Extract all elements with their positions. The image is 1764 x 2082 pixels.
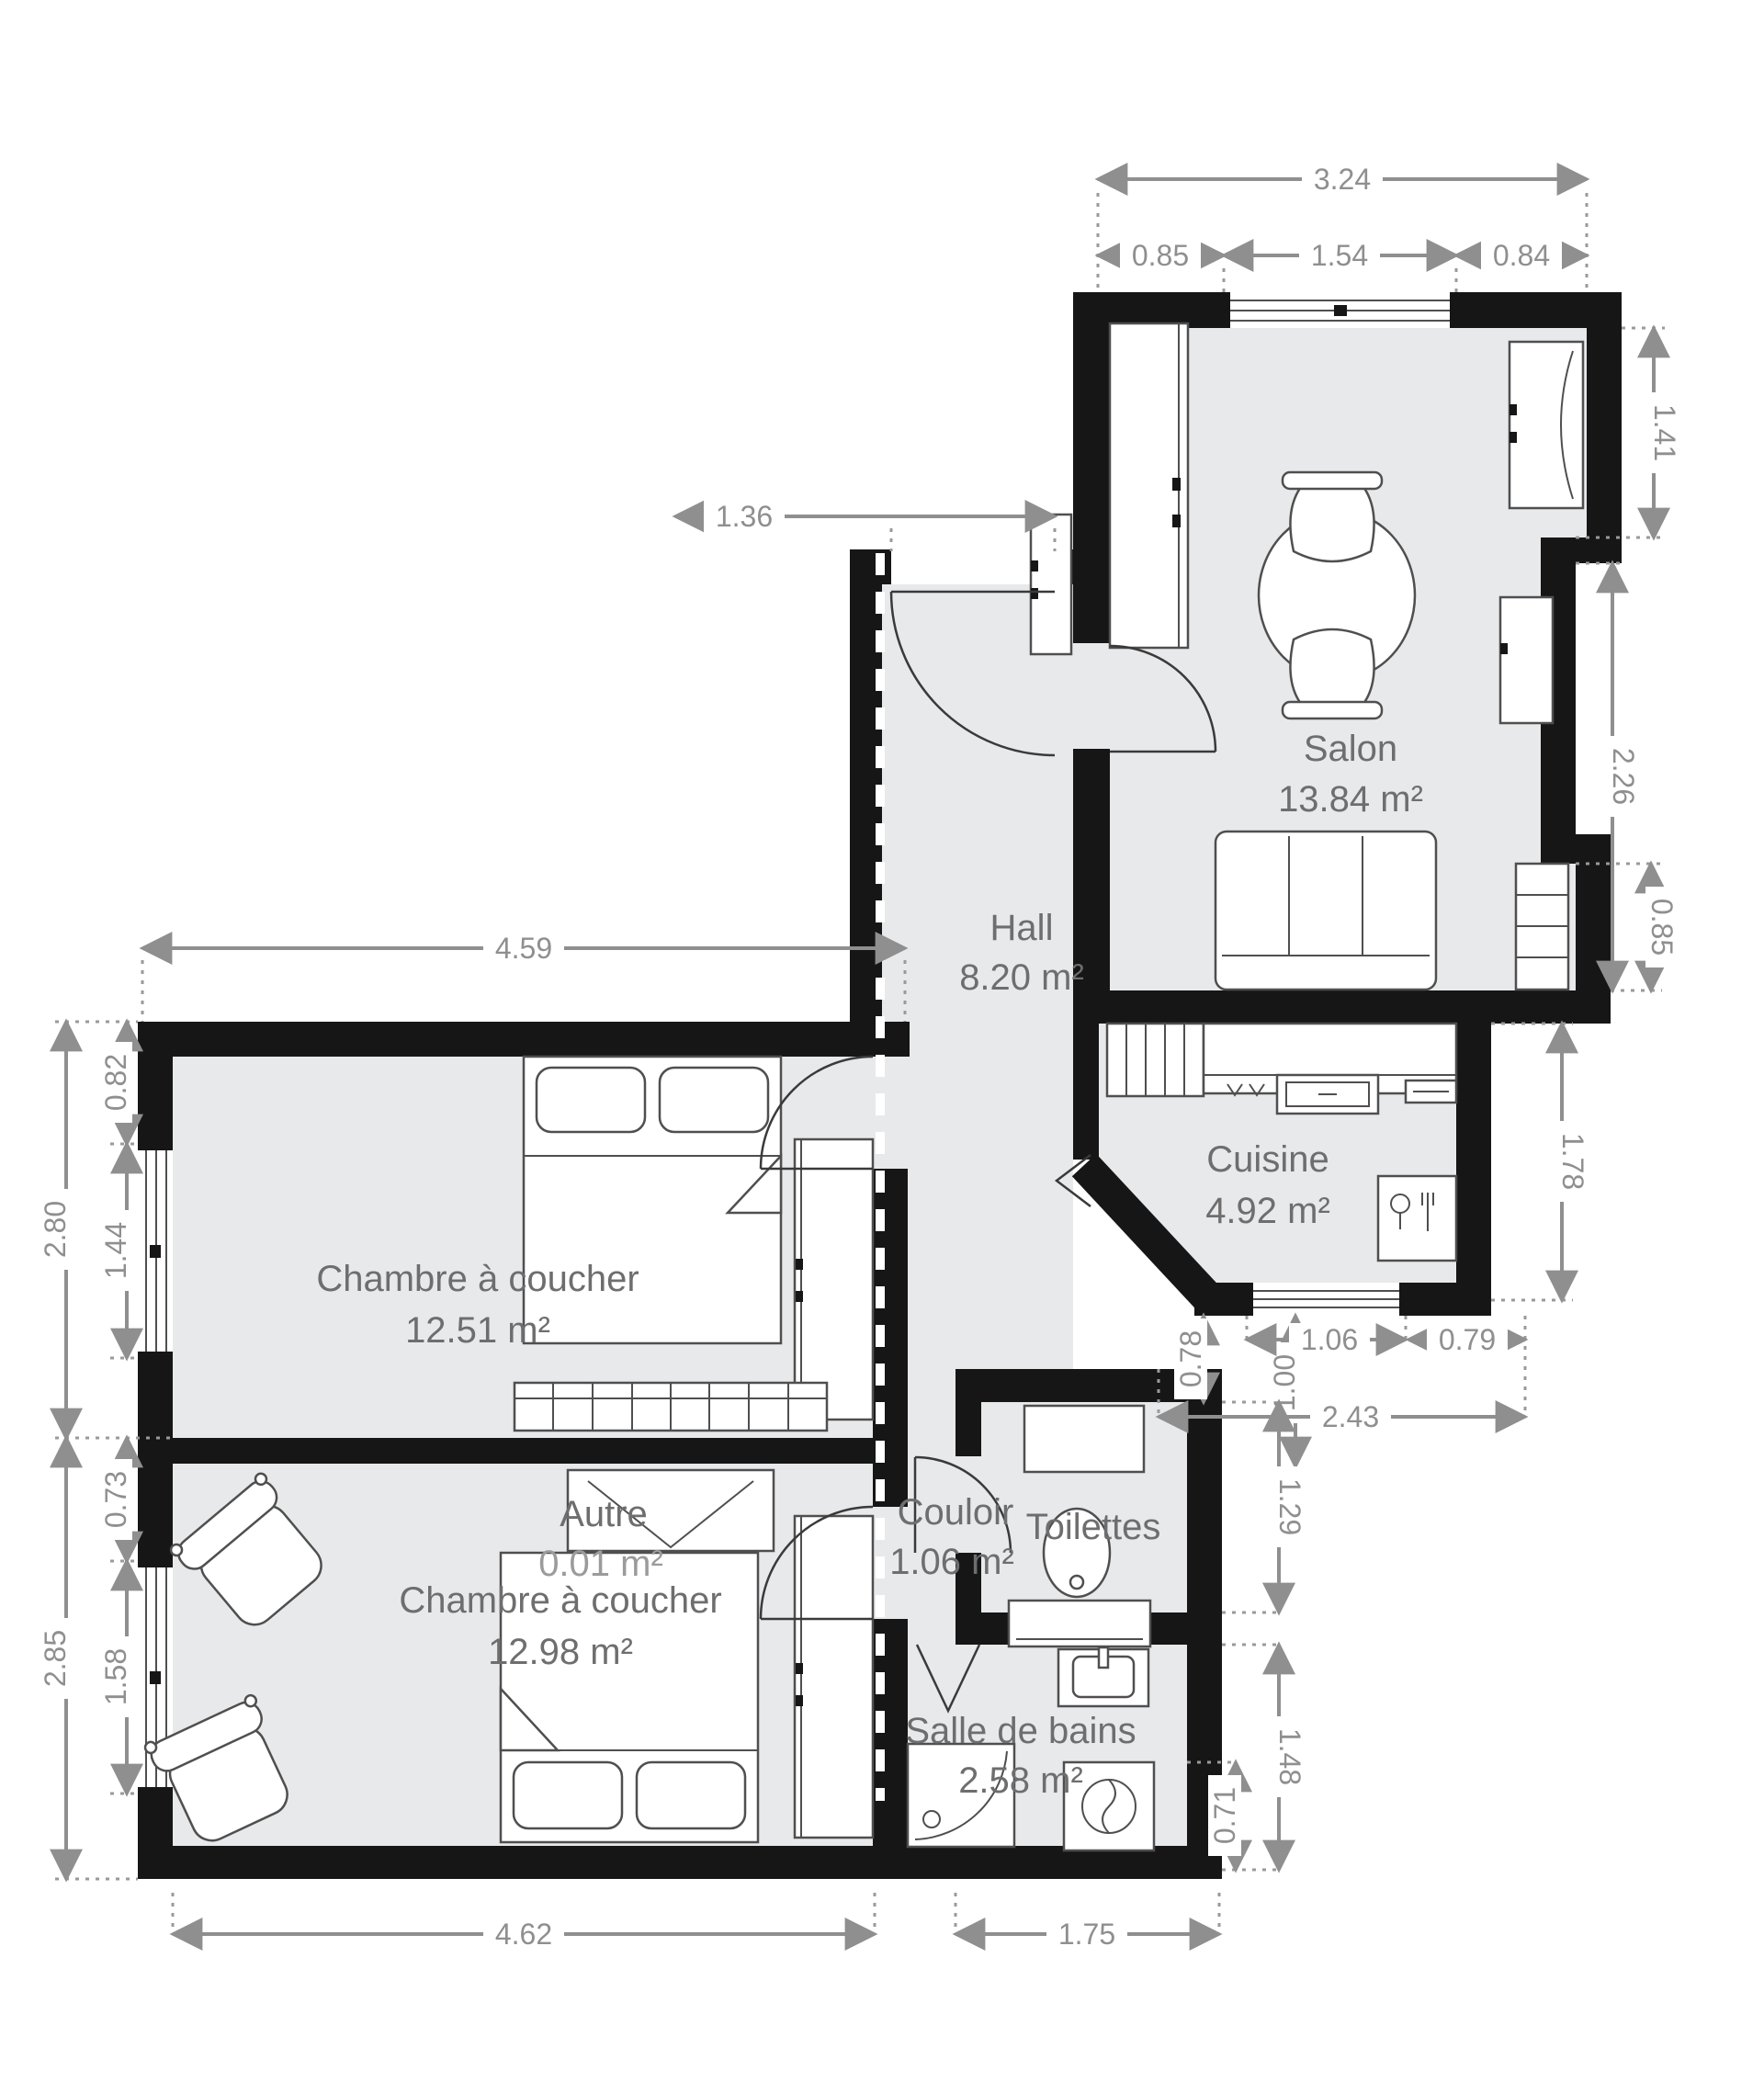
floor-plan: 3.24 0.85 1.54 0.84 1.36 4.59 1.41 2.26 … <box>0 0 1764 2082</box>
wardrobe-icon <box>795 1516 873 1838</box>
dim-bath-inner: 0.71 <box>1208 1787 1241 1844</box>
dim-left-lower-window: 1.58 <box>99 1648 132 1705</box>
chair-icon <box>1283 629 1382 719</box>
dim-toilettes-side: 1.29 <box>1273 1478 1306 1535</box>
oven-icon <box>1277 1075 1378 1114</box>
bed-icon <box>524 1057 781 1343</box>
dim-bottom-bedroom: 4.62 <box>495 1918 552 1951</box>
wardrobe-icon <box>795 1139 873 1420</box>
chair-icon <box>1283 472 1382 561</box>
dim-right-radiator: 0.85 <box>1645 899 1679 956</box>
salon-area: 13.84 m² <box>1278 779 1423 820</box>
dim-mid-height: 1.00 <box>1268 1354 1301 1411</box>
dim-kitchen-right: 1.78 <box>1556 1133 1589 1190</box>
dim-left-lower-total: 2.85 <box>39 1630 72 1687</box>
tall-cabinet-icon <box>1110 323 1188 648</box>
dim-mid-total: 2.43 <box>1322 1400 1379 1433</box>
dresser-mirror-icon <box>514 1383 827 1431</box>
cuisine-area: 4.92 m² <box>1205 1191 1330 1231</box>
small-table-icon <box>1378 1176 1456 1261</box>
dim-mid-offset: 0.78 <box>1174 1330 1207 1387</box>
bedroom1-window <box>138 1144 173 1358</box>
chambre2-area: 12.98 m² <box>488 1632 633 1672</box>
dim-mid-right: 0.79 <box>1439 1323 1496 1356</box>
salon-label: Salon <box>1304 729 1397 769</box>
chambre1-area: 12.51 m² <box>405 1310 550 1351</box>
washbasin-icon <box>1058 1647 1148 1706</box>
dim-left-upper-total: 2.80 <box>39 1201 72 1258</box>
dim-right-mid: 2.26 <box>1607 748 1640 805</box>
cuisine-window <box>1247 1283 1406 1316</box>
bains-label: Salle de bains <box>905 1711 1136 1751</box>
dim-right-niche: 1.41 <box>1648 404 1681 461</box>
hall-closet-icon <box>1031 515 1071 654</box>
radiator-icon <box>1516 864 1568 990</box>
dim-bedroom1-top: 4.59 <box>495 932 552 965</box>
toilettes-cabinet-icon <box>1024 1406 1144 1472</box>
sofa-icon <box>1216 832 1436 990</box>
chambre1-label: Chambre à coucher <box>316 1259 639 1299</box>
dim-bath-side: 1.48 <box>1273 1728 1306 1785</box>
kitchen-shelf-icon <box>1406 1081 1456 1103</box>
chambre2-label: Chambre à coucher <box>399 1580 721 1621</box>
couloir-label: Couloir <box>898 1492 1014 1533</box>
dim-hall-entry: 1.36 <box>716 500 773 533</box>
hall-label: Hall <box>990 908 1054 948</box>
dim-top-total: 3.24 <box>1314 163 1371 196</box>
dim-left-lower-wall: 0.73 <box>99 1471 132 1528</box>
tv-cabinet-icon <box>1510 342 1583 508</box>
couloir-area: 1.06 m² <box>889 1542 1014 1582</box>
dim-left-upper-wall: 0.82 <box>99 1054 132 1111</box>
dim-top-right: 0.84 <box>1493 239 1550 272</box>
cuisine-label: Cuisine <box>1206 1139 1329 1180</box>
shelf-icon <box>1500 597 1553 723</box>
bains-area: 2.58 m² <box>958 1760 1083 1801</box>
autre-label: Autre <box>560 1494 648 1534</box>
dim-bottom-bath: 1.75 <box>1058 1918 1115 1951</box>
stairs-icon <box>1107 1024 1204 1096</box>
autre-area: 0.01 m² <box>538 1544 663 1584</box>
toilettes-label: Toilettes <box>1026 1507 1161 1547</box>
hall-area: 8.20 m² <box>959 957 1084 998</box>
dim-top-window: 1.54 <box>1311 239 1368 272</box>
dim-kitchen-window: 1.06 <box>1301 1323 1358 1356</box>
dim-top-left: 0.85 <box>1132 239 1189 272</box>
salon-window <box>1224 292 1456 328</box>
dim-left-upper-window: 1.44 <box>99 1222 132 1279</box>
